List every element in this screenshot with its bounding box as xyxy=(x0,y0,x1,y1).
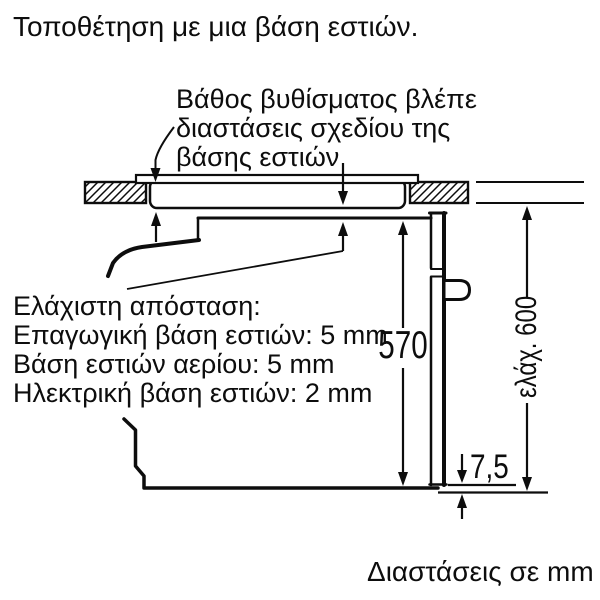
hob-top-lip xyxy=(136,175,418,183)
arrowhead-570-bottom xyxy=(398,472,408,486)
hob-body xyxy=(150,180,405,208)
oven-bottom-and-break-line xyxy=(124,419,438,488)
min-distance-markers xyxy=(127,212,348,289)
recess-depth-note-line2: διαστάσεις σχεδίου της xyxy=(176,114,477,143)
arrowhead-75-up xyxy=(457,494,467,508)
recess-depth-note: Βάθος βυθίσματος βλέπε διαστάσεις σχεδίο… xyxy=(176,85,477,172)
min-distance-gas: Βάση εστιών αερίου: 5 mm xyxy=(13,350,388,379)
recess-depth-note-line1: Βάθος βυθίσματος βλέπε xyxy=(176,85,477,114)
arrowhead-600-bottom xyxy=(522,477,532,491)
min-distance-induction: Επαγωγική βάση εστιών: 5 mm xyxy=(13,321,388,350)
countertop-hatch-right xyxy=(410,182,468,203)
oven-front-joint-ticks xyxy=(431,269,443,277)
arrow-up-hob-underside xyxy=(151,212,161,226)
hob-section xyxy=(136,175,418,208)
dimension-label-570: 570 xyxy=(375,327,431,365)
arrowhead-75-down xyxy=(457,470,467,483)
recess-depth-note-line3: βάσης εστιών xyxy=(176,143,477,172)
min-distance-leader-line xyxy=(127,251,343,289)
arrowhead-570-top xyxy=(398,221,408,235)
oven-knob xyxy=(444,281,470,300)
countertop-extension-lines xyxy=(476,182,584,203)
countertop-hatch-left xyxy=(85,182,146,203)
min-distance-electric: Ηλεκτρική βάση εστιών: 2 mm xyxy=(13,379,388,408)
installation-diagram-page: Τοποθέτηση με μια βάση εστιών. Βάθος βυθ… xyxy=(0,0,600,600)
arrow-up-oven-top xyxy=(338,222,348,236)
arrowhead-600-top xyxy=(522,206,532,220)
dimension-label-min-600: ελάχ. 600 xyxy=(511,302,543,398)
callout-leader-line xyxy=(156,127,175,169)
units-note: Διαστάσεις σε mm xyxy=(367,557,594,587)
min-distance-heading: Ελάχιστη απόσταση: xyxy=(13,292,388,321)
min-distance-note: Ελάχιστη απόσταση: Επαγωγική βάση εστιών… xyxy=(13,292,388,408)
dimension-label-7-5: 7,5 xyxy=(470,451,509,483)
oven-top-slope xyxy=(108,240,199,276)
page-title: Τοποθέτηση με μια βάση εστιών. xyxy=(13,11,418,43)
